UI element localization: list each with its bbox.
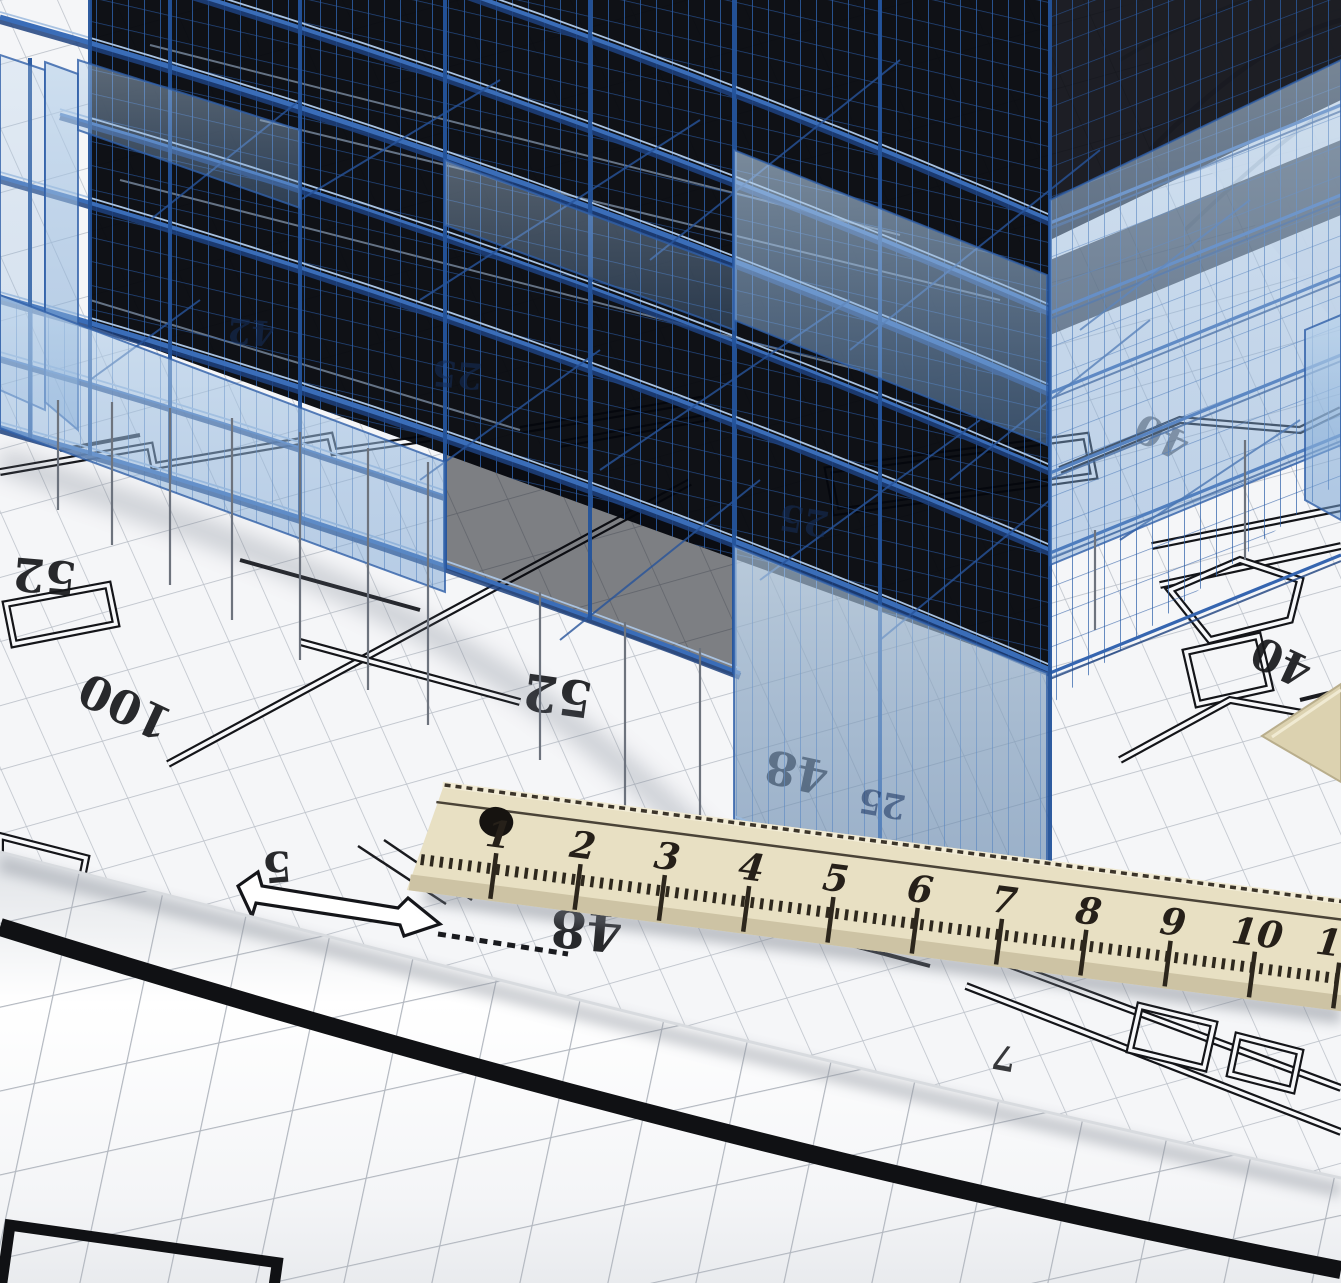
dimension-label: 5 [261,841,294,892]
ruler-number: 11 [1313,919,1341,969]
ruler-number: 10 [1229,908,1286,958]
blueprint-scene: 52100524840548740 42252525 [0,0,1341,1283]
ruler-number: 8 [1072,887,1104,934]
architectural-render: 52100524840548740 42252525 [0,0,1341,1283]
glass-panel [1305,315,1341,520]
glass-label: 25 [855,779,909,827]
glass-label: 25 [430,351,484,397]
dimension-label: 52 [10,546,78,605]
ruler-number: 2 [566,822,598,869]
glass-label: 25 [776,495,833,545]
glass-label: 42 [226,309,277,353]
